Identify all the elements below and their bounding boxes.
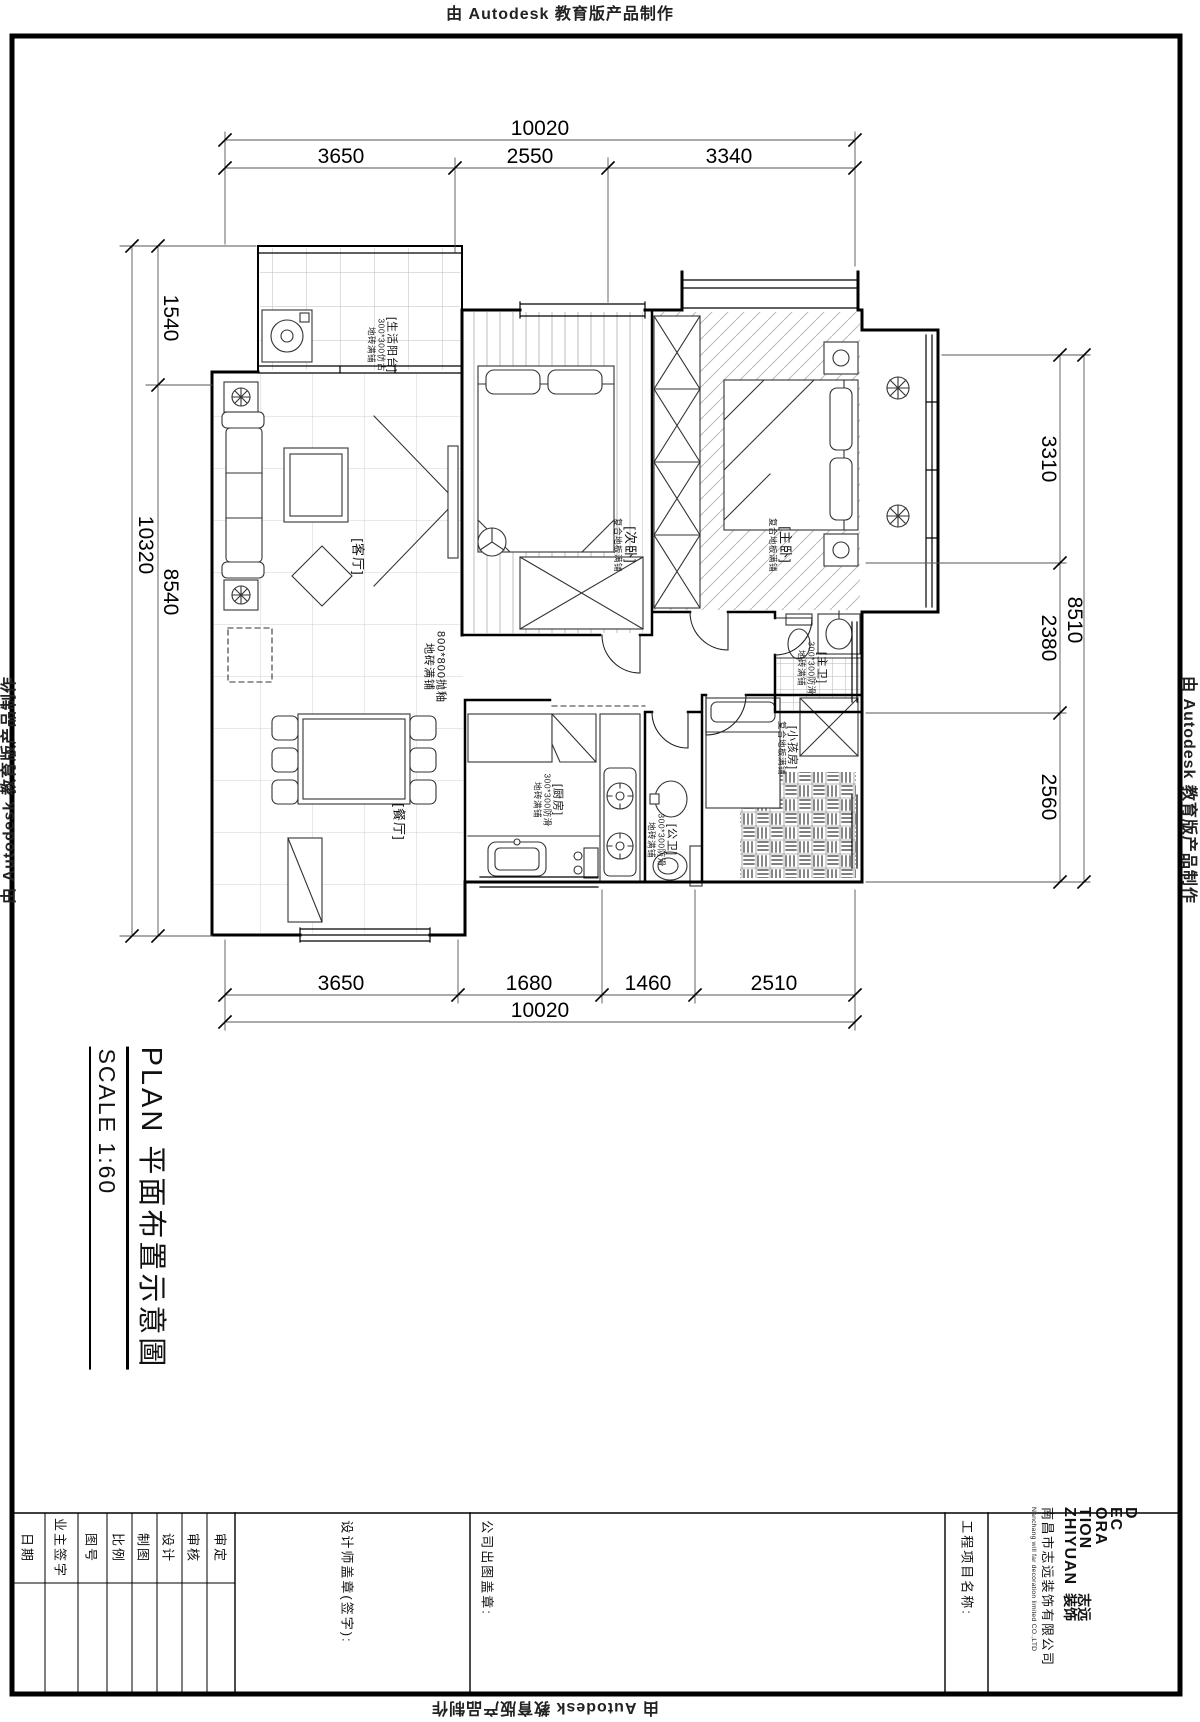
field-designer: 设计 <box>160 1533 179 1563</box>
sofa <box>222 412 264 578</box>
project-name-label: 工程项目名称: <box>959 1520 978 1616</box>
field-drafter: 制图 <box>135 1533 154 1563</box>
room-name: [主卫] <box>815 641 827 694</box>
room-label-bath2: [公卫] 300*300防滑 地砖满铺 <box>646 813 677 866</box>
logo-line: ORA <box>1092 1507 1107 1585</box>
tall-cabinet <box>288 838 322 922</box>
watermark-top: 由 Autodesk 教育版产品制作 <box>446 0 674 24</box>
dim-top-seg2: 2550 <box>507 145 554 169</box>
room-label-bedroom2: [次卧] 复合地板满铺 <box>613 518 637 572</box>
room-finish: 300*300仿古 <box>376 317 386 373</box>
company-logo: D EC ORA TION ZHIYUAN 志远 装饰 <box>1062 1507 1138 1697</box>
company-block: D EC ORA TION ZHIYUAN 志远 装饰 南昌市志远装饰有限公司 … <box>1030 1507 1138 1697</box>
designer-stamp-label: 设计师盖章(签字): <box>339 1520 358 1643</box>
company-name-en: Nanchang will far decoration limited CO.… <box>1030 1507 1037 1697</box>
dim-right-overall: 8510 <box>1062 597 1086 644</box>
dim-bottom-seg4: 2510 <box>751 972 798 996</box>
dim-right-seg2: 2380 <box>1036 615 1060 662</box>
room-label-kids: [小孩房] 复合地板满铺 <box>776 721 798 775</box>
logo-line: TION <box>1077 1507 1092 1585</box>
dim-bottom-overall: 10020 <box>511 999 569 1023</box>
bay-plants <box>887 377 909 527</box>
water-heater <box>574 848 598 878</box>
logo-cn-line: 装饰 <box>1062 1593 1077 1621</box>
drawing-title-text: PLAN 平面布置示意圖 <box>126 1047 175 1370</box>
drawing-scale-text: SCALE 1:60 <box>89 1047 124 1370</box>
dim-top-seg3: 3340 <box>706 145 753 169</box>
room-name: [餐厅] <box>391 803 406 840</box>
logo-wordmark: D EC ORA TION ZHIYUAN <box>1062 1507 1138 1585</box>
room-finish: 地砖满铺 <box>796 641 806 694</box>
field-drawing-no: 图号 <box>83 1533 102 1563</box>
room-label-kitchen: [厨房] 300*300防滑 地砖满铺 <box>532 773 563 826</box>
coffee-table <box>284 448 348 522</box>
dim-right-seg1: 3310 <box>1036 436 1060 483</box>
room-name: [生活阳台] <box>385 317 397 373</box>
watermark-left: 由 Autodesk 教育版产品制作 <box>0 676 19 904</box>
dim-bottom-seg2: 1680 <box>506 972 553 996</box>
dim-left-outer: 10320 <box>133 516 157 574</box>
floor-note-line: 地砖满铺 <box>422 631 434 703</box>
dim-left-seg: 1540 <box>158 295 182 342</box>
room-name: [小孩房] <box>786 721 798 775</box>
dining-table-chairs <box>272 714 436 804</box>
washing-machine <box>262 310 312 362</box>
bed-kids <box>706 698 780 808</box>
floor-plan-drawing <box>0 0 1200 1717</box>
room-label-master-bath: [主卫] 300*300防滑 地砖满铺 <box>796 641 827 694</box>
dim-top-seg1: 3650 <box>318 145 365 169</box>
wardrobe-master <box>654 316 700 608</box>
field-scale: 比例 <box>110 1533 129 1563</box>
logo-line: D <box>1123 1507 1138 1585</box>
room-name: [客厅] <box>350 538 365 575</box>
bed-bedroom2 <box>478 366 614 552</box>
logo-line: ZHIYUAN <box>1062 1507 1077 1585</box>
room-label-master: [主卧] 复合地板满铺 <box>768 518 792 572</box>
cad-floorplan-sheet: { "watermark": { "text": "由 Autodesk 教育版… <box>0 0 1200 1717</box>
floor-note: 800*800抛釉 地砖满铺 <box>422 631 447 703</box>
field-approver: 审定 <box>212 1533 231 1563</box>
dim-left-inner: 8540 <box>158 569 182 616</box>
drawing-title: PLAN 平面布置示意圖 SCALE 1:60 <box>89 1047 175 1370</box>
room-finish: 300*300防滑 <box>806 641 816 694</box>
room-finish: 地砖满铺 <box>646 813 656 866</box>
dim-right-seg3: 2560 <box>1036 774 1060 821</box>
room-label-dining: [餐厅] <box>391 803 406 840</box>
room-name: [主卧] <box>777 518 792 572</box>
logo-line: EC <box>1108 1507 1123 1585</box>
wardrobe-kids <box>800 698 858 756</box>
field-owner-signature: 业主签字 <box>52 1518 71 1578</box>
room-finish: 复合地板满铺 <box>613 518 623 572</box>
floor-note-line: 800*800抛釉 <box>434 631 446 703</box>
company-stamp-label: 公司出图盖章: <box>479 1520 498 1616</box>
room-name: [厨房] <box>551 773 563 826</box>
room-name: [次卧] <box>622 518 637 572</box>
ceiling-fan <box>478 528 506 556</box>
field-reviewer: 审核 <box>185 1533 204 1563</box>
logo-cn: 志远 装饰 <box>1062 1593 1091 1621</box>
room-label-living: [客厅] <box>350 538 365 575</box>
room-finish: 300*300防滑 <box>542 773 552 826</box>
room-finish: 地砖满铺 <box>366 317 376 373</box>
dim-bottom-seg1: 3650 <box>318 972 365 996</box>
room-name: [公卫] <box>665 813 677 866</box>
bed-master <box>724 380 858 530</box>
room-finish: 复合地板满铺 <box>768 518 778 572</box>
room-label-balcony: [生活阳台] 300*300仿古 地砖满铺 <box>366 317 397 373</box>
watermark-right: 由 Autodesk 教育版产品制作 <box>1179 676 1200 904</box>
field-date: 日期 <box>19 1533 38 1563</box>
dim-bottom-seg3: 1460 <box>625 972 672 996</box>
watermark-bottom: 由 Autodesk 教育版产品制作 <box>431 1698 659 1722</box>
room-finish: 300*300防滑 <box>656 813 666 866</box>
dim-top-overall: 10020 <box>511 117 569 141</box>
room-finish: 复合地板满铺 <box>776 721 786 775</box>
company-name-cn: 南昌市志远装饰有限公司 <box>1039 1507 1058 1697</box>
logo-cn-line: 志远 <box>1077 1593 1092 1621</box>
room-finish: 地砖满铺 <box>532 773 542 826</box>
